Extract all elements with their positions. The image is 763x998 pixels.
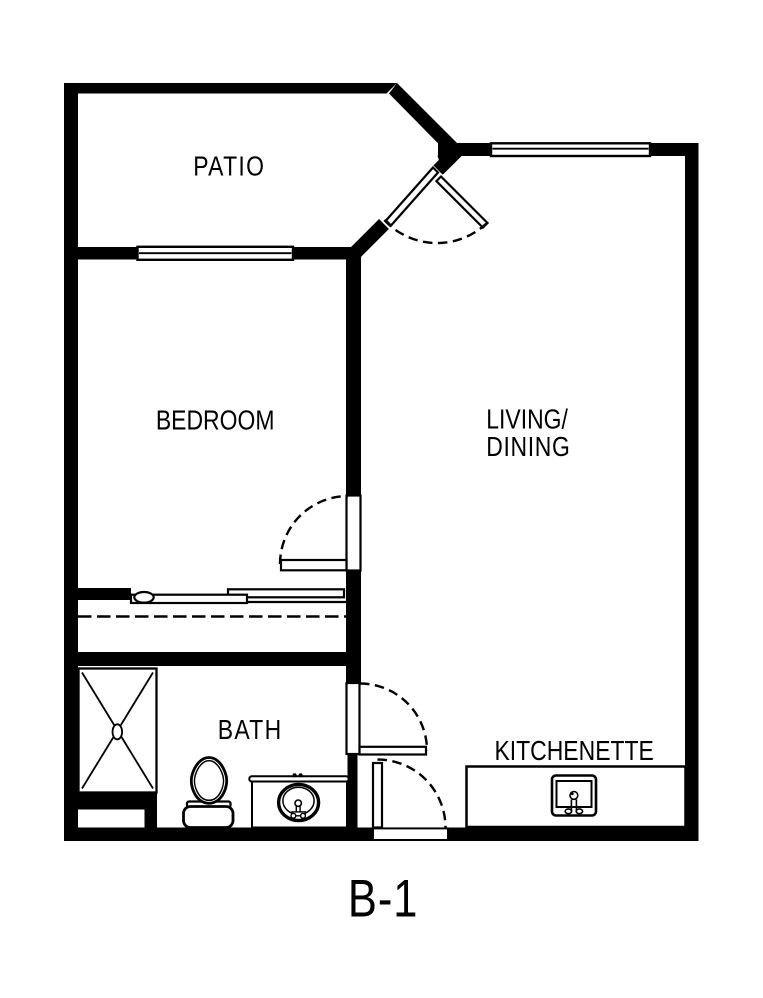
svg-text:BATH: BATH [218, 715, 283, 746]
svg-text:DINING: DINING [486, 432, 570, 463]
svg-text:LIVING/: LIVING/ [486, 404, 568, 435]
svg-text:B-1: B-1 [348, 869, 419, 928]
svg-text:BEDROOM: BEDROOM [156, 405, 275, 436]
svg-text:PATIO: PATIO [193, 152, 265, 183]
svg-text:KITCHENETTE: KITCHENETTE [494, 736, 653, 767]
